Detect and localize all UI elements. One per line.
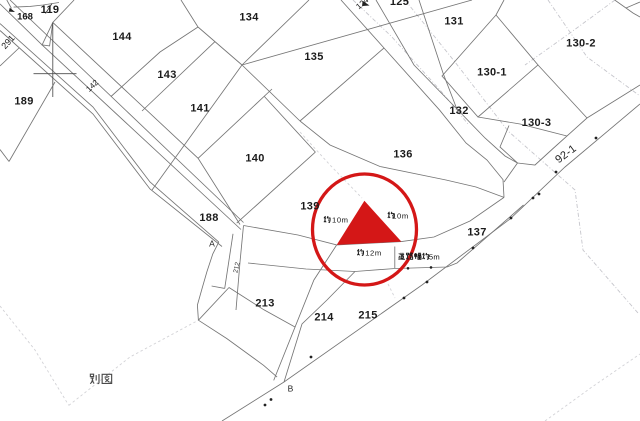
svg-text:134: 134 [239, 12, 259, 24]
svg-text:189: 189 [14, 96, 33, 108]
svg-text:125: 125 [390, 0, 409, 8]
svg-text:143: 143 [157, 69, 176, 81]
svg-text:168: 168 [17, 12, 33, 23]
svg-text:213: 213 [255, 298, 274, 310]
svg-text:144: 144 [112, 31, 132, 43]
svg-text:10m: 10m [332, 216, 349, 225]
svg-text:12m: 12m [365, 249, 382, 258]
svg-text:137: 137 [467, 227, 486, 239]
svg-text:131: 131 [444, 16, 463, 28]
svg-text:130-3: 130-3 [522, 117, 552, 129]
svg-text:215: 215 [358, 310, 377, 322]
svg-text:188: 188 [199, 212, 218, 224]
svg-text:136: 136 [393, 149, 412, 161]
svg-text:132: 132 [449, 105, 468, 117]
svg-text:10m: 10m [392, 211, 409, 220]
svg-text:130-1: 130-1 [477, 67, 507, 79]
svg-text:B: B [288, 384, 294, 394]
svg-text:214: 214 [314, 312, 334, 324]
svg-text:A: A [209, 239, 215, 249]
svg-text:130-2: 130-2 [566, 38, 596, 50]
svg-text:141: 141 [190, 103, 209, 115]
svg-text:135: 135 [304, 51, 323, 63]
svg-text:139: 139 [300, 201, 319, 213]
svg-text:119: 119 [41, 4, 60, 16]
svg-text:5m: 5m [429, 253, 440, 262]
svg-text:140: 140 [245, 153, 264, 165]
